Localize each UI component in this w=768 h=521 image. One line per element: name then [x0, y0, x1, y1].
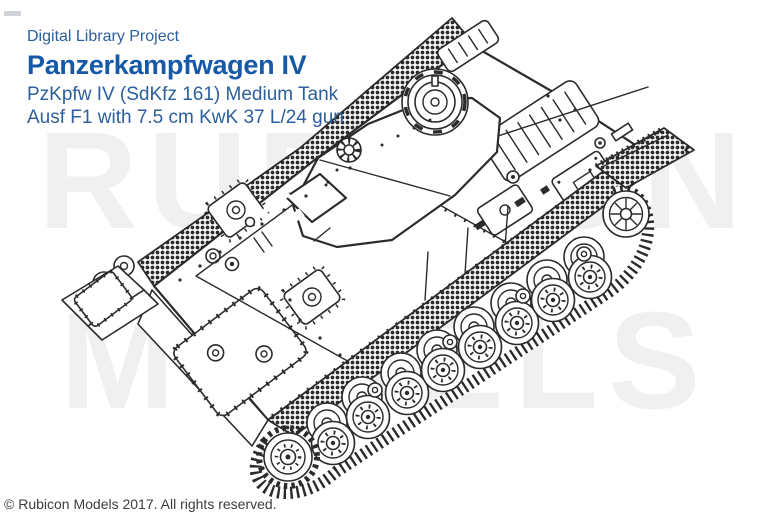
scan-artifact [4, 11, 21, 16]
turret-ventilator [337, 138, 361, 162]
headlight [206, 249, 220, 263]
page-title: Panzerkampfwagen IV [27, 50, 344, 80]
subtitle-line-1: PzKpfw IV (SdKfz 161) Medium Tank [27, 83, 344, 106]
slide-page: RUBICON MODELS [0, 0, 768, 521]
drive-sprocket [259, 428, 317, 486]
commander-cupola [402, 69, 468, 135]
header: Digital Library Project Panzerkampfwagen… [27, 28, 344, 129]
project-eyebrow: Digital Library Project [27, 28, 344, 46]
subtitle-line-2: Ausf F1 with 7.5 cm KwK 37 L/24 gun [27, 106, 344, 129]
idler-wheel [603, 191, 649, 237]
copyright-notice: © Rubicon Models 2017. All rights reserv… [4, 496, 277, 512]
